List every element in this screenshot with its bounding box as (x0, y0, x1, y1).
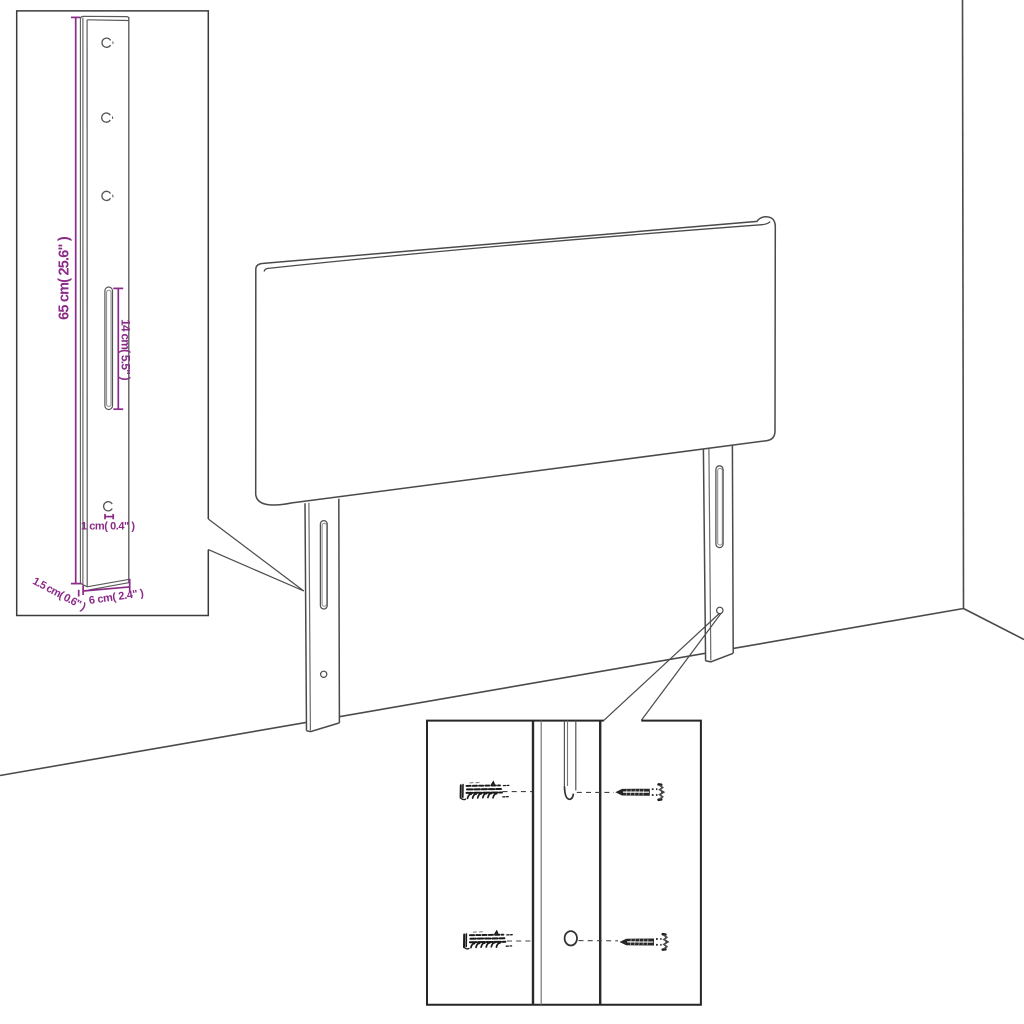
svg-text:14 cm( 5.5" ): 14 cm( 5.5" ) (119, 319, 133, 380)
svg-text:1 cm( 0.4" ): 1 cm( 0.4" ) (81, 520, 135, 532)
svg-text:65 cm( 25.6" ): 65 cm( 25.6" ) (57, 236, 73, 320)
